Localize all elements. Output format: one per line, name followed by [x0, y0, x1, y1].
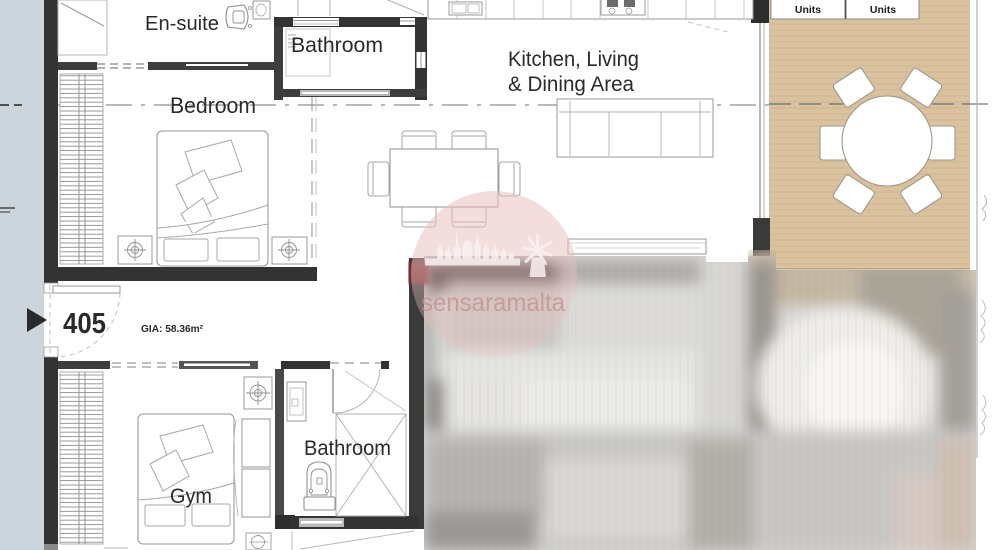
svg-text:Bedroom: Bedroom [170, 93, 256, 118]
svg-text:sensaramalta: sensaramalta [421, 289, 565, 317]
svg-text:Bathroom: Bathroom [291, 34, 383, 57]
svg-text:GIA: 58.36m²: GIA: 58.36m² [141, 323, 203, 335]
svg-text:405: 405 [63, 308, 106, 340]
svg-text:Units: Units [795, 4, 821, 16]
svg-text:Bathroom: Bathroom [304, 437, 391, 460]
svg-text:Kitchen, Living: Kitchen, Living [508, 47, 639, 71]
svg-text:& Dining Area: & Dining Area [508, 72, 634, 96]
svg-text:Units: Units [870, 4, 896, 16]
svg-text:Gym: Gym [170, 485, 212, 508]
svg-text:En-suite: En-suite [145, 12, 219, 35]
